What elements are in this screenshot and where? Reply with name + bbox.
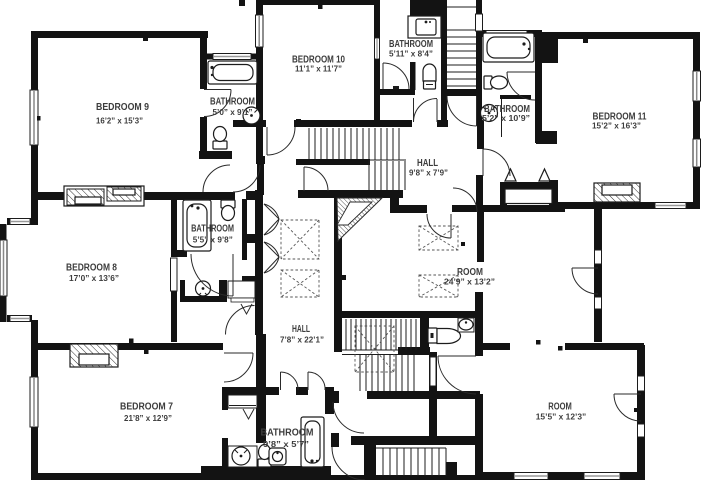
svg-text:5’0” x 9’1”: 5’0” x 9’1” [213,107,253,117]
svg-text:HALL: HALL [292,324,310,335]
svg-text:17’0” x 13’6”: 17’0” x 13’6” [69,273,119,283]
svg-text:9’8” x 7’9”: 9’8” x 7’9” [409,168,448,178]
svg-text:BEDROOM 7: BEDROOM 7 [120,402,173,413]
svg-text:BATHROOM: BATHROOM [261,428,314,439]
svg-text:5’11” x 8’4”: 5’11” x 8’4” [389,49,433,59]
svg-text:24’9” x 13’2”: 24’9” x 13’2” [444,277,495,287]
svg-text:16’2” x 15’3”: 16’2” x 15’3” [96,116,143,126]
svg-text:9’8” x 5’7”: 9’8” x 5’7” [263,439,309,449]
svg-text:11’1” x 11’7”: 11’1” x 11’7” [295,64,342,74]
svg-text:5’5” x 9’8”: 5’5” x 9’8” [193,235,233,245]
svg-text:15’2” x 16’3”: 15’2” x 16’3” [592,121,641,131]
svg-text:21’8” x 12’9”: 21’8” x 12’9” [124,413,172,423]
svg-text:BEDROOM 8: BEDROOM 8 [66,263,117,274]
svg-text:BATHROOM: BATHROOM [191,224,234,235]
svg-text:5’2” x 10’9”: 5’2” x 10’9” [482,113,530,123]
svg-text:15’5” x 12’3”: 15’5” x 12’3” [536,412,587,422]
svg-text:7’8” x 22’1”: 7’8” x 22’1” [280,335,324,345]
svg-text:BATHROOM: BATHROOM [210,97,255,108]
svg-text:BEDROOM 9: BEDROOM 9 [96,102,149,113]
